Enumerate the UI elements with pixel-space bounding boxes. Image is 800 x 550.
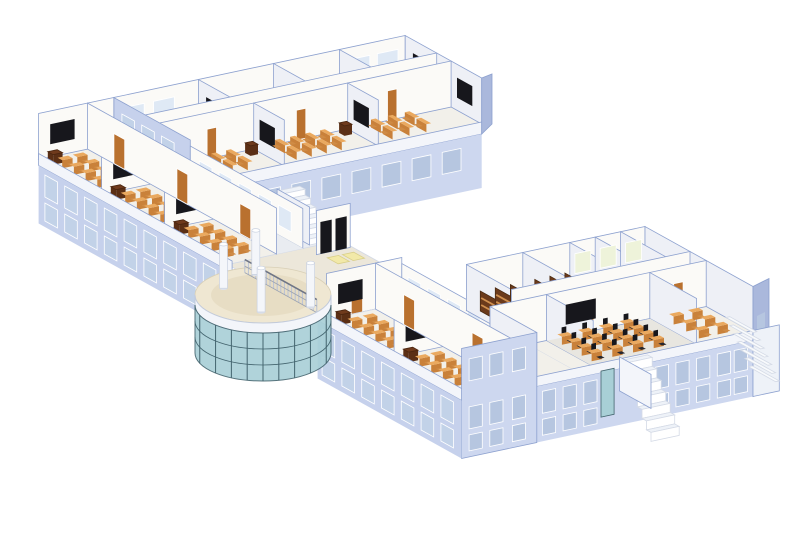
building-cutaway-render <box>0 0 800 550</box>
isometric-building-svg <box>0 0 800 550</box>
